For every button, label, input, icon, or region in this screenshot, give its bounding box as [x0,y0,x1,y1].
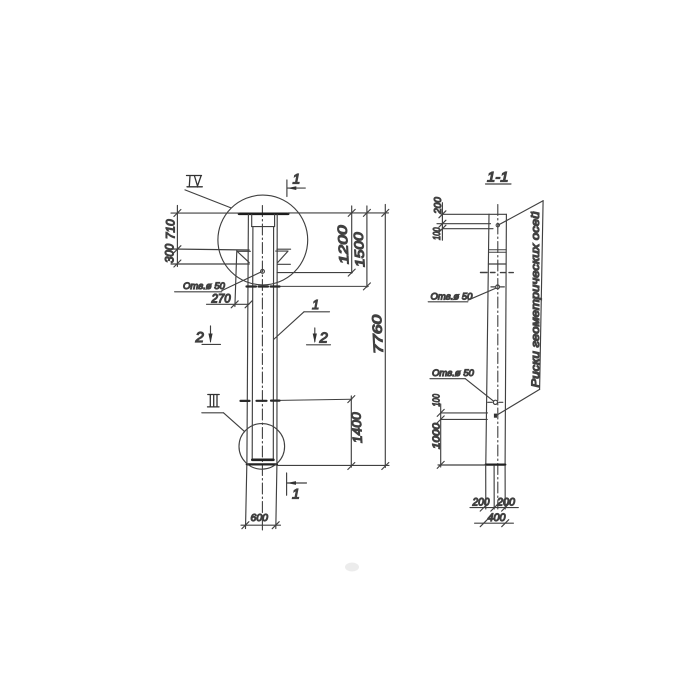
svg-text:100: 100 [432,227,443,240]
svg-text:2: 2 [195,329,205,346]
svg-text:1: 1 [312,297,319,312]
svg-text:1: 1 [292,485,300,501]
svg-text:Отв.ø 50: Отв.ø 50 [432,368,475,379]
svg-text:200: 200 [433,197,444,215]
svg-text:7760: 7760 [369,313,386,354]
svg-text:710: 710 [164,219,178,239]
svg-text:Отв.ø 50: Отв.ø 50 [431,291,474,302]
svg-text:100: 100 [432,394,443,407]
svg-text:Отв.ø 50: Отв.ø 50 [183,281,226,292]
svg-text:1400: 1400 [348,411,365,444]
svg-text:Риски геометрических осей: Риски геометрических осей [530,212,542,388]
svg-text:600: 600 [251,512,269,524]
svg-text:200: 200 [496,496,516,508]
svg-text:1-1: 1-1 [487,170,509,185]
svg-text:200: 200 [472,496,491,508]
svg-text:1000: 1000 [431,423,443,449]
svg-text:300: 300 [165,243,177,263]
svg-text:1200: 1200 [334,224,351,265]
svg-text:1: 1 [293,171,301,187]
svg-text:1500: 1500 [351,231,368,268]
svg-text:2: 2 [319,330,329,347]
svg-text:400: 400 [488,512,507,524]
